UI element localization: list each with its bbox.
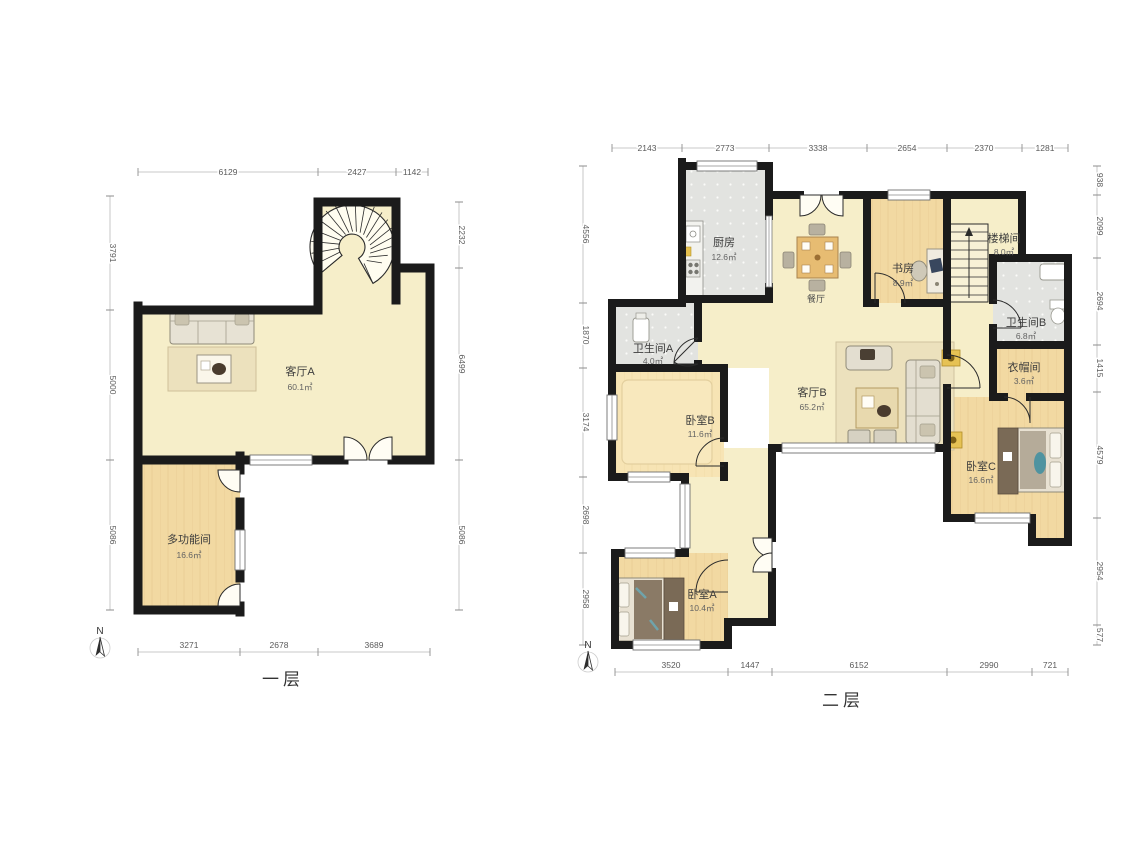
- room-area-study: 8.9㎡: [893, 278, 914, 288]
- floorplan-image: 客厅A 60.1㎡ 多功能间 16.6㎡ 6129 2427 1142 3791…: [0, 0, 1125, 844]
- kitchen-counter: [684, 221, 703, 297]
- room-label-bedroom-b: 卧室B: [685, 413, 714, 427]
- svg-text:N: N: [96, 626, 103, 637]
- svg-text:2370: 2370: [975, 143, 994, 153]
- room-area-stairwell: 8.0㎡: [994, 247, 1015, 257]
- room-area-bath-a: 4.0㎡: [643, 356, 664, 366]
- svg-text:1447: 1447: [741, 660, 760, 670]
- room-area-living-a: 60.1㎡: [287, 382, 313, 392]
- room-area-bedroom-a: 10.4㎡: [689, 603, 715, 613]
- room-area-cloakroom: 3.6㎡: [1014, 376, 1035, 386]
- svg-text:3174: 3174: [581, 413, 591, 432]
- floor2-dim-left: 4556 1870 3174 2698 2958: [579, 166, 591, 645]
- floor2-dim-bottom: 3520 1447 6152 2990 721: [615, 660, 1068, 676]
- room-area-bedroom-b: 11.6㎡: [688, 429, 713, 439]
- svg-text:938: 938: [1095, 173, 1105, 187]
- room-label-kitchen: 厨房: [713, 236, 735, 249]
- floor1-title: 一层: [262, 670, 304, 689]
- room-label-living-a: 客厅A: [285, 364, 315, 378]
- svg-text:2099: 2099: [1095, 217, 1105, 236]
- svg-text:3338: 3338: [809, 143, 828, 153]
- floorplan-page: 客厅A 60.1㎡ 多功能间 16.6㎡ 6129 2427 1142 3791…: [0, 0, 1125, 844]
- floor1-dim-right: 2232 6499 5086: [455, 202, 467, 610]
- svg-text:2773: 2773: [716, 143, 735, 153]
- room-area-multi: 16.6㎡: [176, 550, 202, 560]
- floor2-title: 二层: [822, 691, 864, 710]
- svg-text:2654: 2654: [898, 143, 917, 153]
- svg-text:6152: 6152: [850, 660, 869, 670]
- svg-text:3271: 3271: [180, 640, 199, 650]
- svg-text:2143: 2143: [638, 143, 657, 153]
- room-label-bath-b: 卫生间B: [1006, 315, 1046, 329]
- room-area-kitchen: 12.6㎡: [711, 252, 737, 262]
- floor1-windows: [235, 455, 312, 570]
- sofa: [170, 311, 254, 344]
- floor2-plan: 厨房 12.6㎡ 餐厅 书房 8.9㎡ 楼梯间 8.0㎡ 卫生间B 6.8㎡ 衣…: [578, 143, 1105, 710]
- floor1-plan: 客厅A 60.1㎡ 多功能间 16.6㎡ 6129 2427 1142 3791…: [90, 167, 467, 689]
- svg-text:3520: 3520: [662, 660, 681, 670]
- room-area-living-b: 65.2㎡: [799, 402, 825, 412]
- bedroom-c-bed: [998, 428, 1068, 494]
- floor1-dim-left: 3791 5000 5086: [106, 196, 118, 610]
- svg-text:1142: 1142: [403, 167, 422, 177]
- room-label-study: 书房: [892, 262, 914, 275]
- svg-text:2958: 2958: [581, 590, 591, 609]
- room-label-bath-a: 卫生间A: [633, 341, 674, 355]
- coffee-table: [197, 355, 231, 383]
- svg-text:1415: 1415: [1095, 359, 1105, 378]
- floor2-dim-right: 938 2099 2694 1415 4579 2954 577: [1093, 166, 1105, 645]
- floor2-dim-top: 2143 2773 3338 2654 2370 1281: [612, 143, 1068, 153]
- svg-text:2990: 2990: [980, 660, 999, 670]
- svg-text:2427: 2427: [348, 167, 367, 177]
- floor1-dim-top: 6129 2427 1142: [138, 167, 428, 177]
- room-area-bath-b: 6.8㎡: [1016, 331, 1037, 341]
- svg-text:5086: 5086: [108, 526, 118, 545]
- room-label-dining: 餐厅: [807, 293, 825, 304]
- svg-text:4579: 4579: [1095, 446, 1105, 465]
- svg-text:6499: 6499: [457, 355, 467, 374]
- svg-text:5000: 5000: [108, 376, 118, 395]
- room-label-cloakroom: 衣帽间: [1008, 360, 1041, 374]
- bedroom-a-bed: [617, 578, 684, 642]
- svg-text:2698: 2698: [581, 506, 591, 525]
- svg-text:2232: 2232: [457, 226, 467, 245]
- room-label-bedroom-c: 卧室C: [966, 459, 996, 473]
- room-label-living-b: 客厅B: [797, 385, 826, 399]
- svg-text:3689: 3689: [365, 640, 384, 650]
- svg-text:1281: 1281: [1036, 143, 1055, 153]
- staircase: [950, 224, 988, 302]
- svg-text:1870: 1870: [581, 326, 591, 345]
- room-label-stairwell: 楼梯间: [988, 231, 1021, 245]
- svg-text:5086: 5086: [457, 526, 467, 545]
- floor1-dim-bottom: 3271 2678 3689: [138, 640, 430, 656]
- room-label-multi: 多功能间: [167, 532, 211, 546]
- svg-text:2694: 2694: [1095, 292, 1105, 311]
- svg-text:721: 721: [1043, 660, 1057, 670]
- floor1-north-arrow: N: [90, 626, 110, 658]
- svg-text:2954: 2954: [1095, 562, 1105, 581]
- svg-text:N: N: [584, 640, 591, 651]
- svg-text:2678: 2678: [270, 640, 289, 650]
- room-label-bedroom-a: 卧室A: [687, 587, 717, 601]
- svg-text:3791: 3791: [108, 244, 118, 263]
- svg-text:4556: 4556: [581, 225, 591, 244]
- room-area-bedroom-c: 16.6㎡: [968, 475, 994, 485]
- svg-text:6129: 6129: [219, 167, 238, 177]
- svg-text:577: 577: [1095, 628, 1105, 642]
